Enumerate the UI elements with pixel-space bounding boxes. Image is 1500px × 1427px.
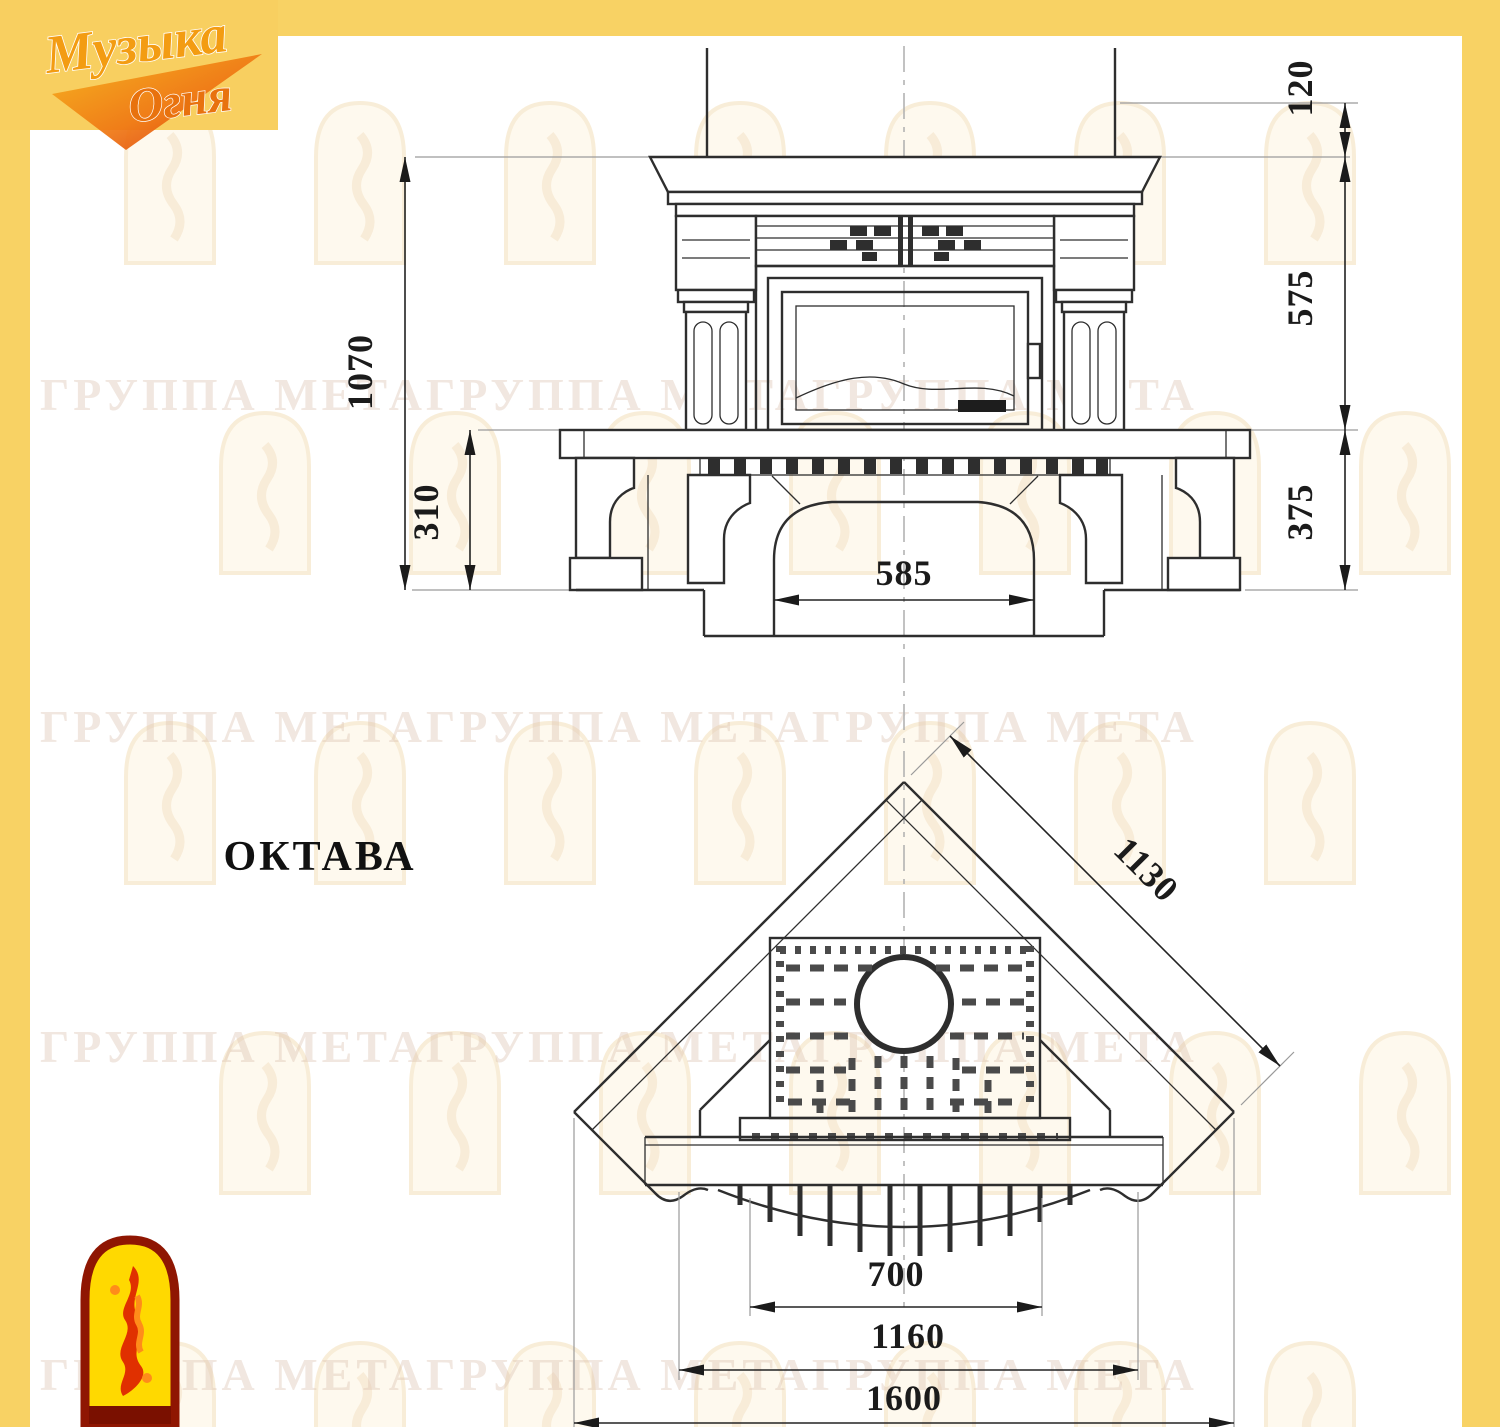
hearth-shelf: [560, 430, 1250, 458]
dim-top-offset: 120: [1280, 60, 1320, 117]
hearth-balusters: [740, 1186, 1070, 1256]
left-pilaster: [678, 290, 754, 430]
watermark-row-4: ГРУППА МЕТАГРУППА МЕТАГРУППА МЕТА: [40, 1349, 1198, 1400]
technical-drawing-canvas: ГРУППА МЕТАГРУППА МЕТАГРУППА МЕТА ГРУППА…: [0, 0, 1500, 1427]
dim-plinth-height: 310: [406, 484, 446, 541]
brand-logo: Музыка Огня: [0, 0, 278, 150]
page: ГРУППА МЕТАГРУППА МЕТАГРУППА МЕТА ГРУППА…: [0, 0, 1500, 1427]
door-vent: [958, 400, 1006, 412]
watermark-row-2: ГРУППА МЕТАГРУППА МЕТАГРУППА МЕТА: [40, 701, 1198, 752]
right-border: [1462, 0, 1500, 1427]
door-handle: [1028, 344, 1040, 378]
watermark-row-1: ГРУППА МЕТАГРУППА МЕТАГРУППА МЕТА: [40, 369, 1198, 420]
left-inner-corbel: [688, 475, 750, 583]
left-capital: [676, 216, 756, 290]
left-border: [0, 0, 30, 1427]
mantel-shelf: [650, 157, 1160, 192]
frieze-band: [756, 216, 1054, 266]
dim-arch-opening: 585: [876, 553, 933, 593]
dim-overall-width: 1600: [866, 1378, 942, 1418]
dim-firebox-front: 700: [868, 1254, 925, 1294]
fire-dancer-emblem: [85, 1240, 175, 1427]
dim-body-width: 1160: [871, 1316, 945, 1356]
model-title: ОКТАВА: [223, 834, 416, 880]
watermark-arch-pattern: [126, 103, 1449, 1427]
dentil-row: [700, 458, 1110, 475]
dim-total-height: 1070: [340, 334, 380, 410]
dim-shelf-to-hearth: 575: [1280, 270, 1320, 327]
watermark-row-3: ГРУППА МЕТАГРУППА МЕТАГРУППА МЕТА: [40, 1021, 1198, 1072]
flame-accent: [137, 1296, 141, 1352]
dim-base-height: 375: [1280, 484, 1320, 541]
right-pilaster: [1056, 290, 1132, 430]
right-capital: [1054, 216, 1134, 290]
